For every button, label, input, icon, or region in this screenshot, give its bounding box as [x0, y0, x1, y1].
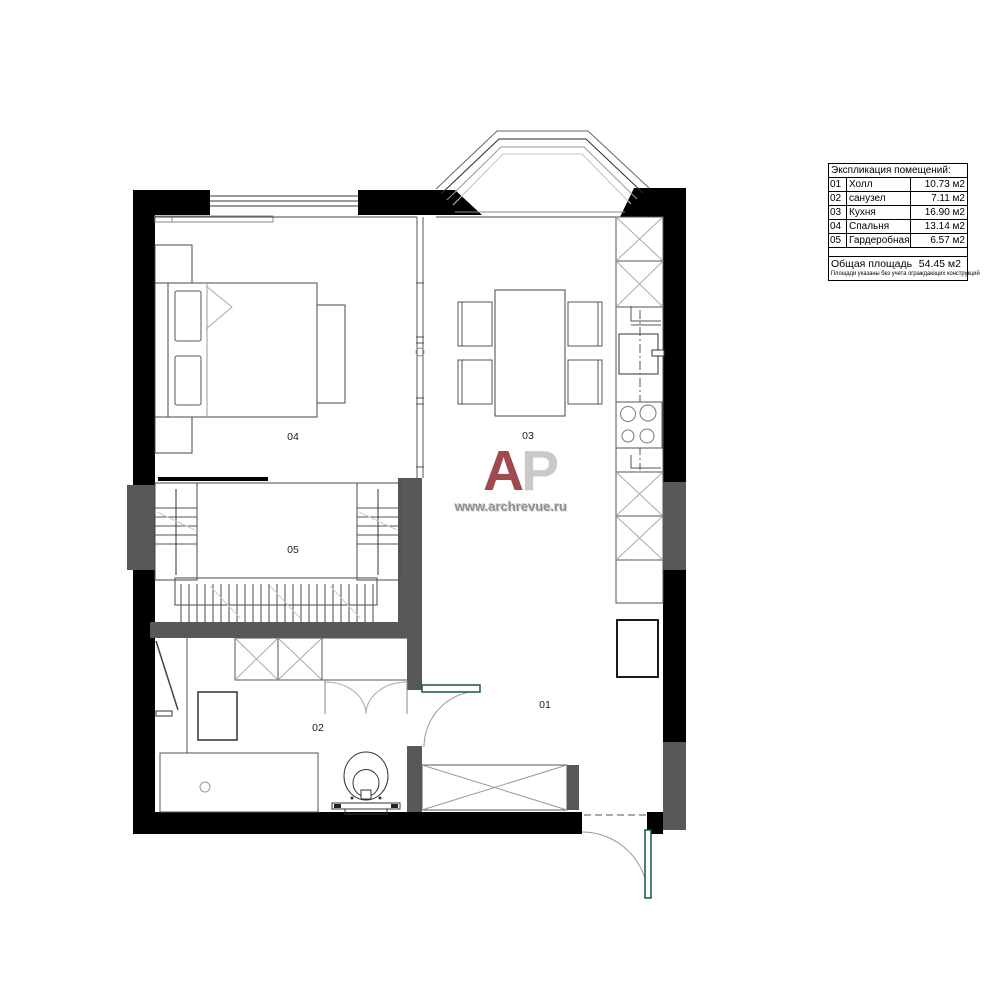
legend-row-area: 16.90 м2 [910, 206, 967, 219]
bay-line-3 [447, 147, 637, 200]
legend-table: Экспликация помещений: 01 Холл 10.73 м2 … [828, 163, 968, 281]
tv-console-line [158, 477, 268, 481]
room-label-hall: 01 [539, 699, 551, 711]
hall-furniture [422, 620, 658, 810]
legend-row-num: 04 [829, 220, 847, 233]
legend-row-name: Спальня [847, 220, 910, 233]
window-glazing-lines [210, 196, 358, 206]
wall-bath-right-lower [407, 746, 422, 812]
legend-total-row: Общая площадь 54.45 м2 [829, 257, 967, 270]
hall-closet-cap [567, 765, 579, 810]
mixer-tap [156, 711, 172, 716]
legend-row-wardrobe: 05 Гардеробная 6.57 м2 [828, 234, 968, 248]
hall-cabinet [617, 620, 658, 677]
watermark-logo: AP [483, 443, 556, 500]
legend-spacer [828, 248, 968, 256]
legend-title: Экспликация помещений: [828, 163, 968, 178]
wall-bay-left-base [436, 190, 482, 215]
watermark-letter-a: A [483, 439, 521, 503]
watermark-letter-p: P [521, 439, 556, 503]
bathroom-door-leaf [422, 685, 480, 692]
bed-bench [317, 305, 345, 403]
watermark-url: www.archrevue.ru [455, 499, 567, 514]
legend-row-area: 6.57 м2 [910, 234, 967, 247]
bedroom-furniture [155, 245, 345, 453]
legend-row-area: 10.73 м2 [910, 178, 967, 191]
wall-top-mid [358, 190, 436, 215]
legend-row-name: Кухня [847, 206, 910, 219]
legend-row-name: санузел [847, 192, 910, 205]
glass-partition [416, 217, 424, 478]
wall-right-gray-upper [663, 482, 686, 570]
toilet-bolt-right [379, 797, 382, 800]
washbasin [198, 692, 237, 740]
sink-faucet [652, 350, 664, 356]
toilet-bolt-left [351, 797, 354, 800]
chair-left-top [458, 302, 492, 346]
bay-line-inner [453, 154, 631, 205]
legend-total-value: 54.45 м2 [919, 259, 961, 270]
legend-row-num: 01 [829, 178, 847, 191]
shower-door-leaf [156, 641, 178, 710]
bathroom-fixtures [156, 638, 408, 814]
wall-left-gray-segment [127, 485, 155, 570]
pillow-top [175, 291, 201, 341]
legend-row-num: 02 [829, 192, 847, 205]
inner-walls [127, 478, 686, 830]
drain [200, 782, 210, 792]
legend-total-label: Общая площадь [831, 259, 912, 270]
wall-wardrobe-bath-divider [150, 622, 422, 638]
legend-footnote: Площади указаны без учета ограждающих ко… [829, 270, 961, 280]
bay-line-outer [436, 131, 649, 189]
legend-row-hall: 01 Холл 10.73 м2 [828, 178, 968, 192]
chair-right-top [568, 302, 602, 346]
wall-right-gray-lower [663, 742, 686, 830]
toilet-seat-tab [361, 790, 371, 799]
room-label-bedroom: 04 [287, 431, 299, 443]
chair-right-bottom [568, 360, 602, 404]
bath-double-door-arcs [325, 682, 407, 714]
kitchen-furniture [458, 217, 664, 603]
chair-left-bottom [458, 360, 492, 404]
legend-total-box: Общая площадь 54.45 м2 Площади указаны б… [828, 256, 968, 281]
legend-row-name: Гардеробная [847, 234, 910, 247]
legend-row-bedroom: 04 Спальня 13.14 м2 [828, 220, 968, 234]
toilet-cistern-bar [332, 803, 400, 809]
wall-bath-right-upper [407, 638, 422, 690]
legend-row-num: 03 [829, 206, 847, 219]
wall-bottom [133, 812, 582, 834]
floor-plan-canvas: 01 02 03 04 05 Экспликация помещений: 01… [0, 0, 1005, 983]
wardrobe-diagonals [157, 512, 397, 530]
legend-row-name: Холл [847, 178, 910, 191]
nightstand-top [155, 245, 192, 283]
cistern-cap-right [391, 804, 398, 808]
cistern-cap-left [334, 804, 341, 808]
wall-wardrobe-right [398, 478, 422, 622]
legend-row-num: 05 [829, 234, 847, 247]
room-label-bathroom: 02 [312, 722, 324, 734]
legend-row-kitchen: 03 Кухня 16.90 м2 [828, 206, 968, 220]
bath-cabinet-x1-cross [235, 638, 278, 680]
pillow-bottom [175, 356, 201, 405]
legend-row-area: 7.11 м2 [910, 192, 967, 205]
bath-cabinet-x2-cross [278, 638, 322, 680]
entry-door-leaf [645, 830, 651, 898]
bathroom-door-swing [424, 691, 480, 747]
nightstand-bottom [155, 417, 192, 453]
wardrobe-closet [155, 483, 400, 622]
dining-table [495, 290, 565, 416]
wardrobe-rails [176, 489, 378, 575]
legend-row-bathroom: 02 санузел 7.11 м2 [828, 192, 968, 206]
toilet [332, 752, 400, 814]
wardrobe-hangers [181, 584, 373, 622]
bath-cabinet-plain [322, 638, 408, 680]
entry-door-swing [582, 832, 648, 898]
legend-row-area: 13.14 м2 [910, 220, 967, 233]
shower-tray [160, 753, 318, 812]
room-label-wardrobe: 05 [287, 544, 299, 556]
